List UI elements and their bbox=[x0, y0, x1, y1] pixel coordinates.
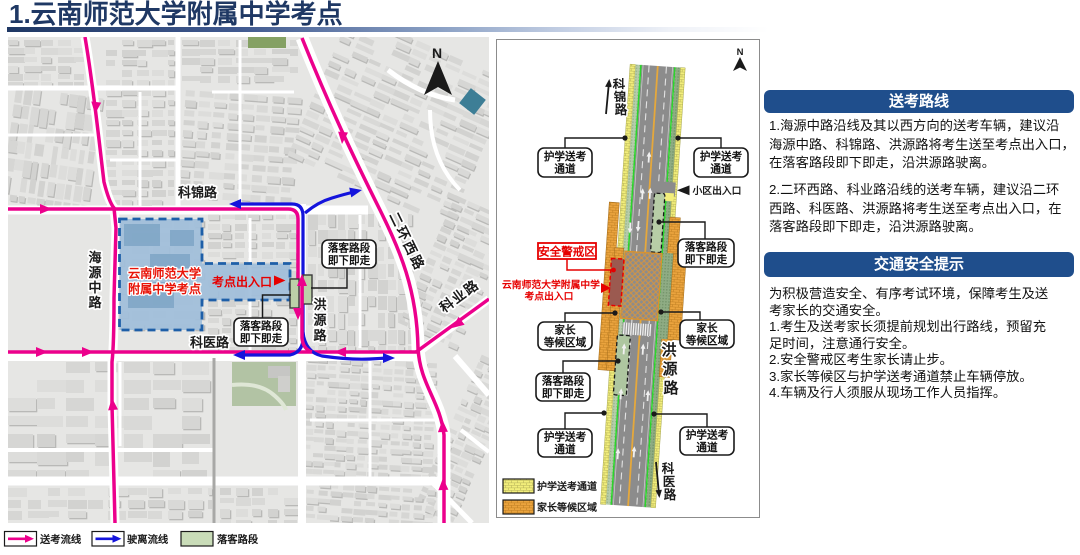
svg-text:考点出入口: 考点出入口 bbox=[525, 290, 574, 303]
svg-text:科: 科 bbox=[662, 461, 675, 476]
svg-text:落客路段: 落客路段 bbox=[217, 533, 259, 546]
svg-text:家长: 家长 bbox=[554, 324, 576, 337]
svg-text:护学送考通道: 护学送考通道 bbox=[537, 480, 597, 493]
svg-text:即下即走: 即下即走 bbox=[542, 387, 585, 400]
svg-text:小区出入口: 小区出入口 bbox=[693, 184, 742, 197]
svg-text:等候区域: 等候区域 bbox=[685, 334, 729, 347]
svg-text:云南师范大学附属中学: 云南师范大学附属中学 bbox=[502, 278, 600, 291]
svg-text:护学送考: 护学送考 bbox=[686, 429, 729, 442]
svg-text:等候区域: 等候区域 bbox=[543, 336, 587, 349]
svg-text:医: 医 bbox=[663, 475, 676, 489]
svg-text:送考流线: 送考流线 bbox=[39, 533, 82, 546]
svg-text:护学送考: 护学送考 bbox=[700, 150, 743, 163]
svg-text:家长等候区域: 家长等候区域 bbox=[537, 501, 597, 514]
svg-text:驶离流线: 驶离流线 bbox=[127, 533, 169, 546]
svg-text:通道: 通道 bbox=[554, 443, 576, 456]
svg-text:护学送考: 护学送考 bbox=[544, 431, 587, 444]
svg-text:洪: 洪 bbox=[661, 342, 676, 359]
svg-text:护学送考: 护学送考 bbox=[544, 150, 587, 163]
svg-text:落客路段: 落客路段 bbox=[542, 375, 585, 388]
svg-text:通道: 通道 bbox=[554, 163, 576, 176]
svg-text:通道: 通道 bbox=[710, 163, 732, 176]
svg-text:路: 路 bbox=[615, 102, 628, 117]
svg-text:路: 路 bbox=[664, 487, 677, 502]
svg-text:安全警戒区: 安全警戒区 bbox=[538, 245, 596, 259]
svg-text:落客路段: 落客路段 bbox=[685, 241, 728, 254]
svg-text:路: 路 bbox=[663, 379, 679, 397]
svg-text:源: 源 bbox=[662, 360, 677, 378]
svg-text:家长: 家长 bbox=[696, 322, 718, 335]
svg-text:通道: 通道 bbox=[696, 441, 718, 454]
svg-text:即下即走: 即下即走 bbox=[685, 253, 728, 266]
svg-text:N: N bbox=[737, 47, 744, 58]
